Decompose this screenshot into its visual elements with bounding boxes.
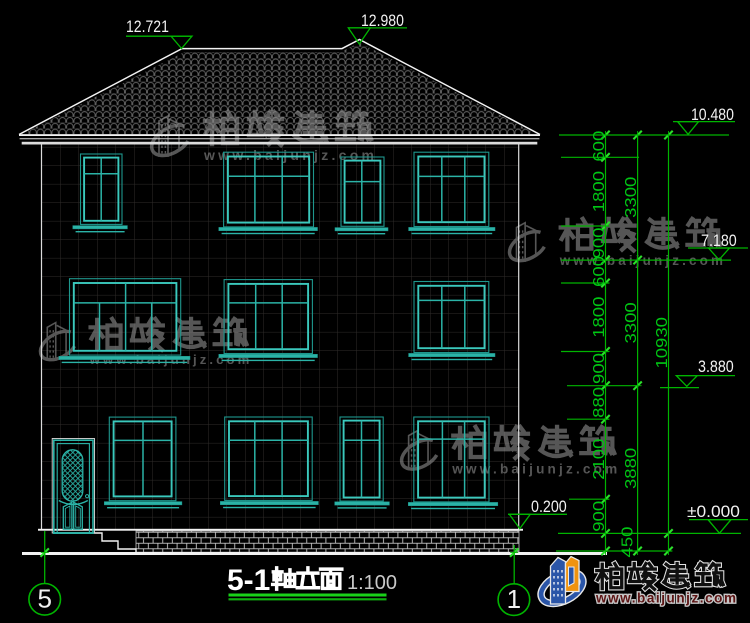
svg-text:3880: 3880: [623, 448, 640, 489]
svg-text:1800: 1800: [591, 296, 608, 337]
svg-text:900: 900: [591, 227, 608, 258]
svg-text:600: 600: [591, 131, 608, 162]
svg-text:1:100: 1:100: [347, 572, 397, 594]
svg-text:5: 5: [37, 584, 51, 614]
svg-text:900: 900: [591, 501, 608, 532]
svg-text:2100: 2100: [591, 438, 608, 479]
svg-text:450: 450: [620, 526, 637, 557]
svg-text:900: 900: [591, 353, 608, 384]
svg-text:3300: 3300: [623, 177, 640, 218]
svg-text:±0.000: ±0.000: [687, 502, 740, 521]
svg-text:7.180: 7.180: [701, 231, 737, 250]
svg-text:10930: 10930: [654, 317, 671, 369]
svg-text:3.880: 3.880: [698, 357, 734, 376]
svg-text:600: 600: [591, 256, 608, 287]
svg-text:0.200: 0.200: [531, 497, 567, 516]
svg-text:12.721: 12.721: [126, 17, 169, 36]
svg-text:5-1: 5-1: [227, 564, 270, 597]
svg-text:12.980: 12.980: [361, 11, 404, 30]
svg-text:3300: 3300: [623, 302, 640, 343]
svg-text:1800: 1800: [591, 171, 608, 212]
svg-text:880: 880: [591, 387, 608, 418]
svg-text:1: 1: [507, 584, 521, 614]
